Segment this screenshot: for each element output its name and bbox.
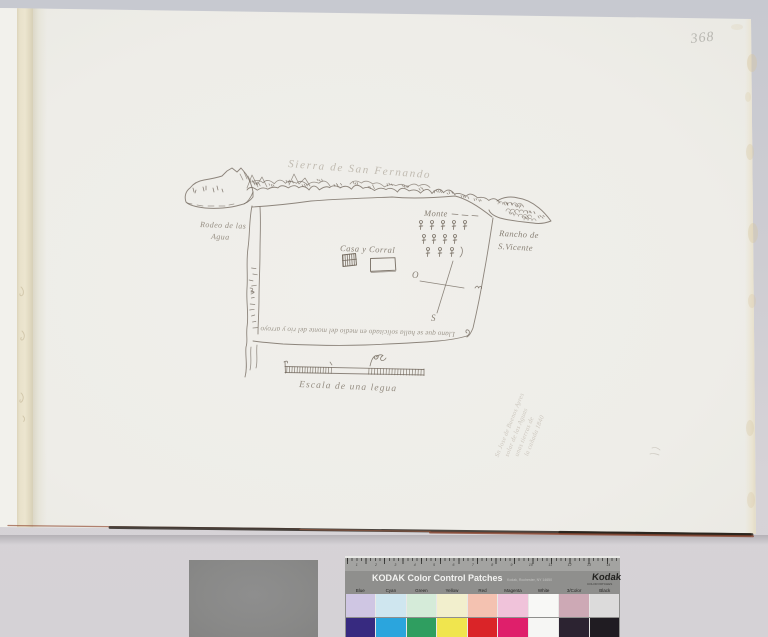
svg-text:S.Vicente: S.Vicente <box>498 241 533 253</box>
svg-text:Monte: Monte <box>423 208 448 218</box>
svg-text:Rodeo de las: Rodeo de las <box>199 220 246 231</box>
svg-text:Agua: Agua <box>210 232 230 242</box>
svg-text:S: S <box>431 313 436 323</box>
svg-text:O: O <box>412 270 419 280</box>
svg-text:Rancho de: Rancho de <box>498 228 539 240</box>
svg-text:368: 368 <box>689 30 715 48</box>
svg-text:Llano que se halla solicitado: Llano que se halla solicitado en medio d… <box>260 325 456 338</box>
svg-text:Casa y Corral: Casa y Corral <box>340 243 396 255</box>
svg-text:Escala de una legua: Escala de una legua <box>298 380 398 394</box>
svg-text:Sierra de San Fernando: Sierra de San Fernando <box>288 158 432 181</box>
